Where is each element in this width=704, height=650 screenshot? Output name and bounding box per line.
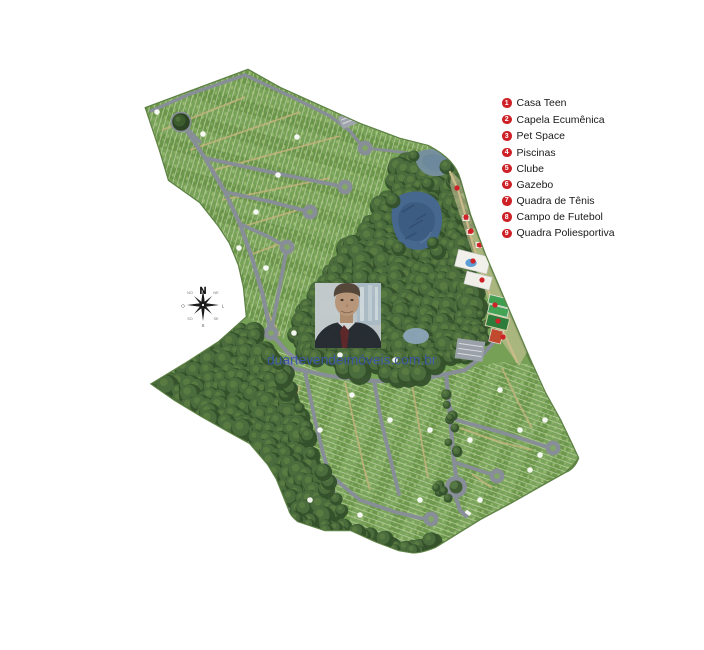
svg-text:NO: NO	[187, 291, 193, 295]
svg-text:SE: SE	[213, 317, 219, 321]
svg-text:duartevendeimóveis.com.br: duartevendeimóveis.com.br	[267, 353, 437, 368]
svg-text:SO: SO	[187, 317, 193, 321]
svg-text:NE: NE	[213, 291, 219, 295]
svg-text:S: S	[201, 323, 204, 328]
svg-text:O: O	[181, 304, 185, 309]
